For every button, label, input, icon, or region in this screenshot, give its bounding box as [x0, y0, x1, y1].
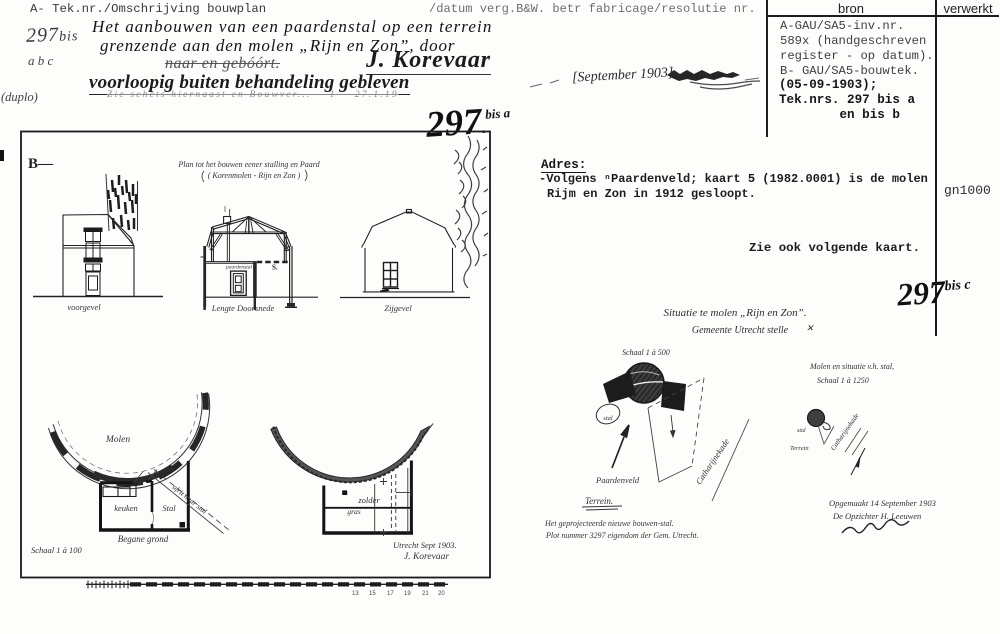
svg-text:J. Korevaar: J. Korevaar: [404, 552, 449, 562]
svg-text:Molen en situatie v.h. stal,: Molen en situatie v.h. stal,: [809, 362, 894, 371]
svg-text:21: 21: [422, 591, 429, 597]
svg-text:19: 19: [404, 591, 411, 597]
svg-text:zolder: zolder: [357, 495, 380, 505]
svg-text:Schaal 1 à 500: Schaal 1 à 500: [622, 348, 670, 357]
svg-text:Catharijnekade: Catharijnekade: [829, 412, 861, 452]
svg-text:( Korenmolen - Rijn en Zon ): ( Korenmolen - Rijn en Zon ): [208, 171, 301, 180]
svg-text:Begane grond: Begane grond: [118, 534, 169, 544]
svg-text:Paardenveld: Paardenveld: [595, 475, 640, 485]
svg-text:Lengte Doorsnede: Lengte Doorsnede: [211, 303, 275, 313]
svg-text:Schaal 1 à 100: Schaal 1 à 100: [31, 545, 83, 555]
svg-text:Stal: Stal: [162, 503, 176, 513]
svg-text:Situatie te molen „Rijn en Zon: Situatie te molen „Rijn en Zon”.: [664, 307, 807, 319]
svg-text:13: 13: [352, 591, 359, 597]
svg-text:17: 17: [387, 591, 394, 597]
svg-text:Opgemaakt 14 September 1903: Opgemaakt 14 September 1903: [829, 498, 936, 508]
svg-text:stal: stal: [603, 415, 613, 422]
svg-text:keuken: keuken: [114, 503, 138, 513]
svg-text:S.: S.: [272, 264, 278, 272]
svg-text:Gemeente Utrecht stelle: Gemeente Utrecht stelle: [692, 325, 789, 336]
svg-text:Catharijnekade: Catharijnekade: [693, 436, 731, 486]
svg-text:Schaal 1 à 1250: Schaal 1 à 1250: [817, 376, 869, 385]
svg-text:paardenstal: paardenstal: [225, 265, 253, 271]
svg-text:15: 15: [369, 591, 376, 597]
svg-text:20: 20: [438, 591, 445, 597]
svg-text:Plan tot het bouwen eener stal: Plan tot het bouwen eener stalling en Pa…: [177, 160, 320, 169]
svg-text:B—: B—: [28, 156, 54, 172]
svg-text:voorgevel: voorgevel: [67, 302, 101, 312]
svg-text:Terrein: Terrein: [790, 445, 809, 452]
svg-text:Molen: Molen: [105, 435, 131, 445]
svg-text:Terrein.: Terrein.: [585, 496, 613, 506]
svg-text:Utrecht Sept 1903.: Utrecht Sept 1903.: [393, 540, 457, 550]
svg-text:stal: stal: [797, 428, 806, 434]
svg-text:gras: gras: [347, 507, 360, 516]
svg-text:Plot nummer 3297 eigendom der: Plot nummer 3297 eigendom der Gem. Utrec…: [545, 531, 699, 540]
svg-text:Zijgevel: Zijgevel: [384, 303, 412, 313]
svg-text:✕: ✕: [806, 323, 814, 333]
svg-text:De Opzichter H. Leeuwen: De Opzichter H. Leeuwen: [832, 511, 921, 521]
svg-text:Het geprojecteerde nieuwe bouw: Het geprojecteerde nieuwe bouwen-stal.: [544, 519, 674, 528]
